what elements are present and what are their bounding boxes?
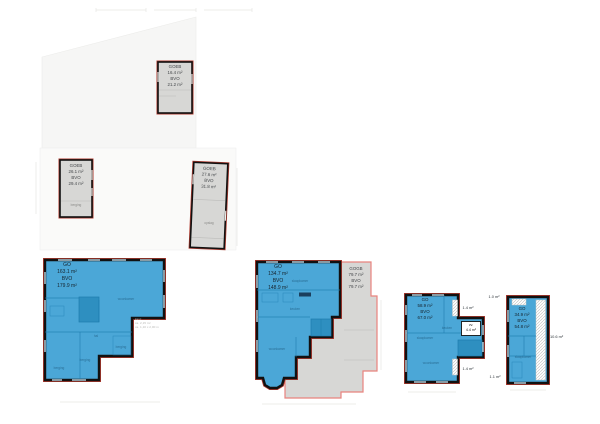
exterior-area-label: 1.4 m² [459,305,477,310]
annotation-line: ca. 1,10 x 2,00 m [135,325,159,329]
gross-value: 179.9 m² [45,283,89,290]
area-type: GO [255,264,301,271]
room-label: woonkamer [262,347,292,351]
gross-value: 79.7 m² [340,284,372,290]
area-value: 163.1 m² [45,269,89,276]
exterior-area-label: 1.1 m² [487,374,503,379]
room-label: woonkamer [416,361,446,365]
gross-type: BVO [45,276,89,283]
room-label: slaapkamer [285,279,315,283]
floorplan-canvas: GOEB 16.4 m² BVO 21.2 m² GOEB 26.1 m² BV… [0,0,600,424]
attic-area-label: GOEB 16.4 m² BVO 21.2 m² [157,64,193,88]
second-floor-area-label: GO 58.9 m² BVO 67.0 m² [407,297,443,321]
storage-left-area-label: GOEB 26.1 m² BVO 29.4 m² [59,163,93,187]
room-label: slaapkamer [410,336,440,340]
exterior-area-label: 1.0 m² [485,294,503,299]
room-label: berging [110,345,132,349]
area-value: 134.7 m² [255,271,301,278]
first-floor-area-label: GO 134.7 m² BVO 148.9 m² [255,264,301,292]
room-label: keuken [282,307,308,311]
gross-value: 67.0 m² [407,315,443,321]
room-label: opslag [196,221,222,225]
gross-value: 29.4 m² [59,181,93,187]
room-label: berging [62,203,90,207]
storage-right-area-label: GOEB 27.6 m² BVO 31.8 m² [192,165,225,190]
room-label: hal [89,334,103,338]
room-label: woonkamer [107,297,145,301]
void-area-label: vv. 4.4 m² [461,323,481,332]
room-label: berging [48,366,70,370]
ground-floor-area-label: GO 163.1 m² BVO 179.9 m² [45,262,89,290]
area-type: GO [45,262,89,269]
room-label: keuken [438,326,456,330]
exterior-area-label: 10.6 m² [550,334,572,339]
gross-value: 148.9 m² [255,285,301,292]
room-label: berging [74,358,96,362]
gross-value: 54.8 m² [509,324,535,330]
gross-value: 21.2 m² [157,82,193,88]
void-value: 4.4 m² [461,328,481,333]
room-label: slaapkamer [510,355,536,359]
closet-annotation: kast: ca. 2,15 m² ca. 1,10 x 2,00 m [135,317,159,330]
top-floor-area-label: GO 34.9 m² BVO 54.8 m² [509,306,535,330]
exterior-area-label: 1.4 m² [459,366,477,371]
first-floor-gogb-label: GOGB 79.7 m² BVO 79.7 m² [340,266,372,290]
